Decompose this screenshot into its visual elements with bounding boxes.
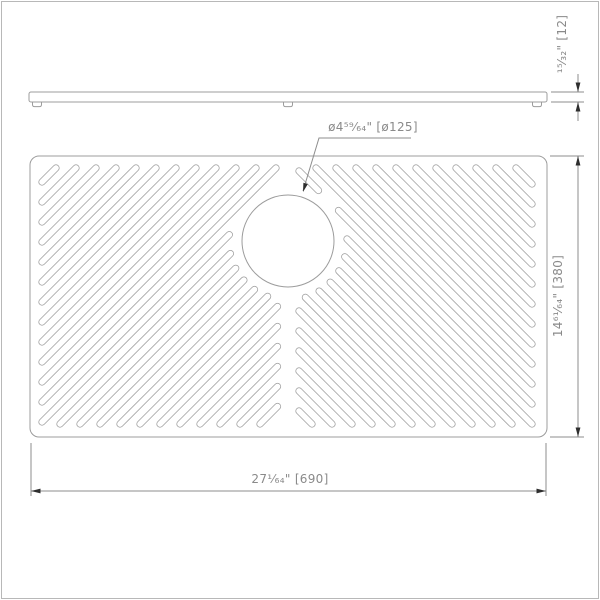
thickness-dimension-label: ¹⁵⁄₃₂" [12] xyxy=(555,15,569,74)
grid-foot xyxy=(533,102,542,107)
technical-drawing: ¹⁵⁄₃₂" [12] ø4⁵⁹⁄₆₄" [ø125] 27¹⁄₆₄" [690… xyxy=(0,0,600,600)
grid-foot xyxy=(33,102,42,107)
width-arrow-right xyxy=(537,489,547,494)
side-view-bar xyxy=(29,92,547,102)
height-dimension-label: 14⁶¹⁄₆₄" [380] xyxy=(551,255,565,337)
height-dimension: 14⁶¹⁄₆₄" [380] xyxy=(550,156,584,437)
grid-foot xyxy=(284,102,293,107)
width-dimension-label: 27¹⁄₆₄" [690] xyxy=(251,472,328,486)
hole-diameter-label: ø4⁵⁹⁄₆₄" [ø125] xyxy=(328,120,418,134)
plan-view xyxy=(30,156,547,437)
drain-hole xyxy=(242,195,334,287)
side-view: ¹⁵⁄₃₂" [12] xyxy=(29,15,584,121)
thickness-arrow-top xyxy=(576,83,581,93)
height-arrow-bottom xyxy=(576,428,581,438)
grid-feet xyxy=(33,102,542,107)
drawing-page: ¹⁵⁄₃₂" [12] ø4⁵⁹⁄₆₄" [ø125] 27¹⁄₆₄" [690… xyxy=(0,0,600,600)
height-arrow-top xyxy=(576,156,581,166)
width-arrow-left xyxy=(31,489,41,494)
width-dimension: 27¹⁄₆₄" [690] xyxy=(31,443,546,496)
thickness-arrow-bottom xyxy=(576,102,581,112)
